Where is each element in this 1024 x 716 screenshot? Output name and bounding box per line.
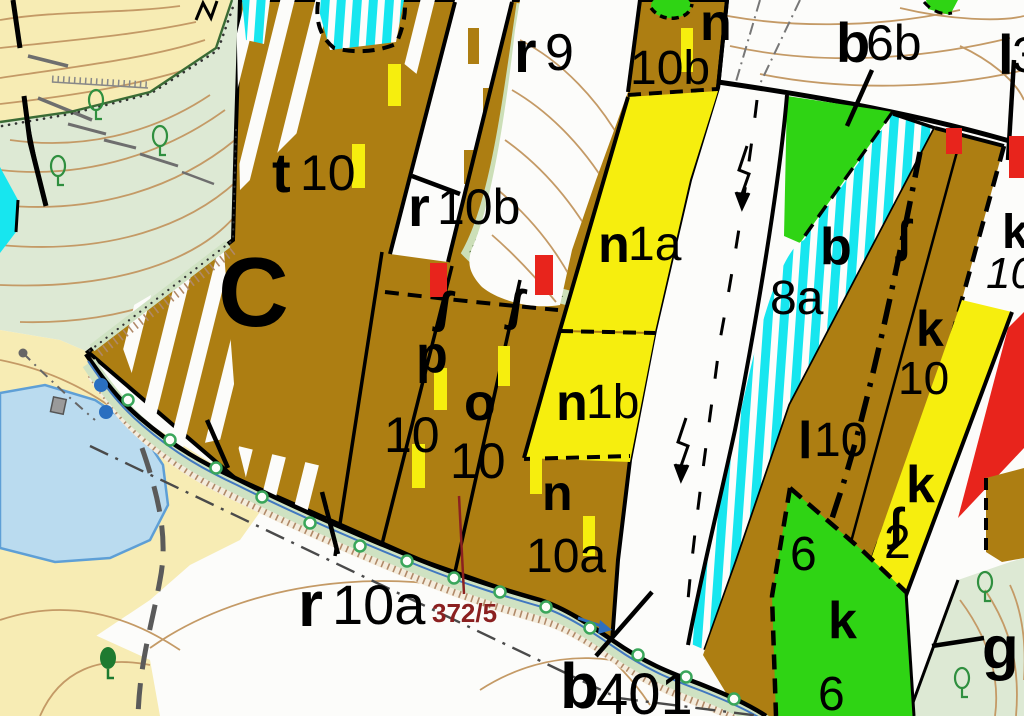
parcel-label-l10: 10 [814, 414, 867, 467]
spring-circle-symbol [495, 587, 506, 598]
spring-circle-symbol [123, 395, 134, 406]
spring-circle-symbol [305, 518, 316, 529]
parcel-label-l3: 3 [1012, 27, 1024, 83]
spring-circle-symbol [541, 602, 552, 613]
spring-circle-symbol [165, 435, 176, 446]
parcel-label-p10: p [416, 326, 448, 384]
parcel-label-n1a: n [598, 216, 630, 274]
parcel-label-k6: 6 [790, 528, 817, 581]
parcel-label-k10-brown: 10 [898, 352, 949, 404]
parcel-label-n1b: n [556, 374, 588, 432]
parcel-label-parcel-372-5: 372/5 [432, 598, 497, 628]
spring-circle-symbol [211, 463, 222, 474]
parcel-label-b6b: 6b [866, 15, 922, 71]
parcel-label-l10: l [798, 412, 812, 470]
red-tick-mark [946, 128, 962, 154]
red-tick-mark [1009, 136, 1024, 178]
parcel-label-n10a: n [542, 465, 573, 521]
parcel-label-c: C [218, 237, 289, 347]
spring-circle-symbol [402, 556, 413, 567]
building-symbol [50, 397, 66, 414]
forestry-map[interactable]: ʃʃʃʃ Ct10r9r10bp10o10n10an10bn1an1bb8ab6… [0, 0, 1024, 716]
parcel-label-p10: 10 [384, 407, 440, 463]
parcel-label-n1b: 1b [586, 376, 639, 429]
spring-hook-symbol: ʃ [895, 210, 914, 262]
parcel-label-n10b: 10b [630, 42, 710, 95]
parcel-label-r10a: 10a [332, 573, 426, 636]
parcel-label-n10a: 10a [526, 530, 606, 583]
water-point-symbol [94, 378, 108, 392]
yellow-tick-mark [498, 346, 510, 386]
parcel-label-o10: o [464, 374, 496, 432]
cyan-triangle-edge [16, 200, 18, 232]
parcel-label-k10-brown: k [916, 301, 944, 357]
parcel-label-b8a: 8a [770, 272, 824, 325]
spring-circle-symbol [355, 541, 366, 552]
yellow-tick-mark [388, 64, 401, 106]
parcel-label-r10a: r [298, 568, 323, 640]
parcel-label-n1a: 1a [628, 218, 682, 271]
parcel-label-r9: 9 [545, 24, 574, 82]
spring-circle-symbol [257, 492, 268, 503]
parcel-label-t10: 10 [300, 145, 356, 201]
water-point-symbol [99, 405, 113, 419]
parcel-label-b8a: b [820, 218, 852, 276]
parcel-label-k6: k [828, 592, 857, 650]
parcel-label-t10: t [272, 141, 291, 204]
spring-circle-symbol [729, 694, 740, 705]
parcel-label-r9: r [514, 20, 537, 85]
spring-circle-symbol [633, 650, 644, 661]
parcel-label-k2: 2 [884, 516, 911, 569]
parcel-label-b401: 401 [596, 662, 693, 716]
parcel-label-b401: b [560, 650, 599, 716]
parcel-label-k10-white: 10 [986, 249, 1024, 298]
parcel-brown-blob-br [986, 468, 1024, 562]
parcel-label-k2: k [906, 456, 935, 514]
parcel-label-k6: 6 [818, 668, 845, 716]
parcel-label-o10: 10 [450, 433, 506, 489]
parcel-label-r10b: 10b [437, 179, 520, 235]
spring-circle-symbol [449, 573, 460, 584]
survey-point [19, 349, 28, 358]
red-tick-mark [535, 255, 553, 295]
yellow-tick-mark [530, 454, 542, 494]
spring-circle-symbol [585, 623, 596, 634]
map-viewport[interactable]: ʃʃʃʃ Ct10r9r10bp10o10n10an10bn1an1bb8ab6… [0, 0, 1024, 716]
parcel-label-r10b: r [408, 175, 430, 238]
parcel-label-g: g [982, 614, 1019, 681]
